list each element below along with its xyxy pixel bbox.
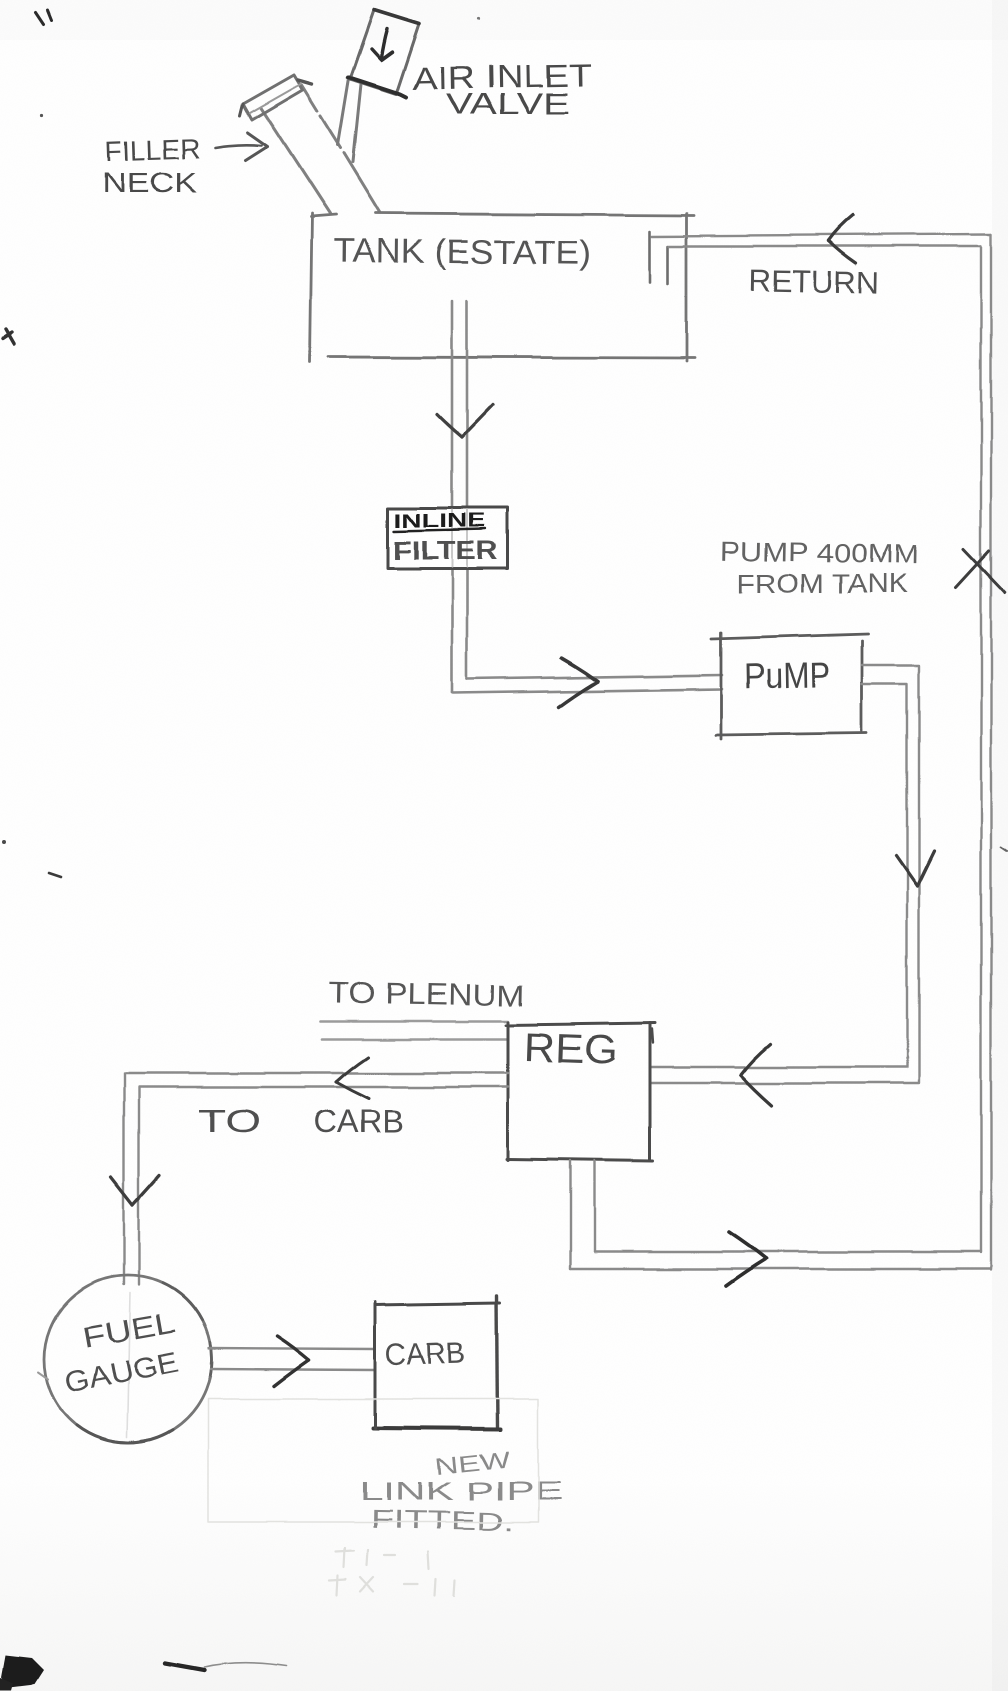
- svg-text:FROM TANK: FROM TANK: [737, 569, 908, 599]
- svg-text:TANK (ESTATE): TANK (ESTATE): [333, 232, 591, 272]
- svg-text:FITTED.: FITTED.: [370, 1504, 515, 1537]
- svg-text:CARB: CARB: [385, 1334, 466, 1372]
- svg-text:FILTER: FILTER: [393, 535, 498, 565]
- svg-text:RETURN: RETURN: [748, 263, 880, 300]
- svg-text:TO PLENUM: TO PLENUM: [329, 976, 526, 1012]
- svg-text:NECK: NECK: [102, 167, 197, 198]
- svg-text:REG: REG: [523, 1025, 618, 1072]
- svg-text:CARB: CARB: [314, 1104, 404, 1140]
- svg-text:TO: TO: [198, 1103, 260, 1139]
- svg-text:PuMP: PuMP: [744, 654, 831, 696]
- svg-text:VALVE: VALVE: [446, 88, 570, 121]
- svg-text:LINK PIPE: LINK PIPE: [359, 1476, 562, 1506]
- svg-text:PUMP 400MM: PUMP 400MM: [720, 536, 919, 569]
- svg-text:FILLER: FILLER: [105, 133, 201, 167]
